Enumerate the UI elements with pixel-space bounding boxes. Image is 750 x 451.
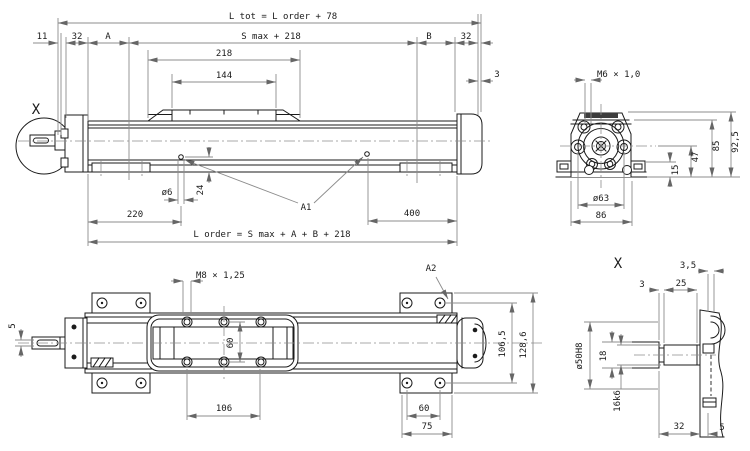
dim-32: 32: [674, 422, 685, 432]
dim-92-5: 92,5: [731, 131, 741, 153]
dim-32-right: 32: [461, 32, 472, 42]
dim-5-detail: 5: [719, 423, 724, 433]
dim-3-5: 3,5: [680, 261, 696, 271]
detail-view-labels: X 3,5 3 25 ø50H8 18 16k6 32 5: [575, 256, 725, 433]
dim-a: A: [105, 32, 111, 42]
technical-drawing-sheet: L tot = L order + 78 S max + 218 11 32 A…: [0, 0, 750, 451]
dim-b: B: [426, 32, 431, 42]
dim-106-5: 106,5: [498, 330, 508, 357]
dim-144: 144: [216, 71, 232, 81]
dim-3: 3: [639, 280, 644, 290]
side-view-geometry: [16, 110, 492, 176]
dim-220: 220: [127, 210, 143, 220]
dim-m6: M6 × 1,0: [597, 70, 640, 80]
plan-view-geometry: [18, 293, 545, 393]
dim-85: 85: [712, 141, 722, 152]
detail-view-x: X 3,5 3 25 ø50H8 18 16k6 32 5: [575, 256, 725, 438]
dim-18: 18: [599, 351, 609, 362]
dim-25: 25: [676, 279, 687, 289]
dim-15: 15: [671, 165, 681, 176]
dim-5: 5: [8, 323, 18, 328]
dim-s-max: S max + 218: [241, 32, 301, 42]
dim-106: 106: [216, 404, 232, 414]
detail-marker-x: X: [32, 102, 41, 118]
label-a1: A1: [301, 203, 312, 213]
dim-218: 218: [216, 49, 232, 59]
drawing-canvas: L tot = L order + 78 S max + 218 11 32 A…: [0, 0, 750, 451]
dim-60-feet: 60: [419, 404, 430, 414]
mounting-foot: [400, 163, 452, 172]
dim-75: 75: [422, 422, 433, 432]
dim-dia6: ø6: [162, 188, 173, 198]
dim-400: 400: [404, 209, 420, 219]
dim-dia50h8: ø50H8: [575, 342, 585, 369]
dim-dia63: ø63: [593, 194, 609, 204]
dim-3: 3: [494, 70, 499, 80]
detail-marker-x: X: [614, 256, 623, 272]
end-view: M6 × 1,0 15 47 85 92,5 ø63 86: [556, 70, 741, 226]
clamp-lug: [711, 316, 725, 344]
dim-24: 24: [196, 185, 206, 196]
label-a2: A2: [426, 264, 437, 274]
dim-16k6: 16k6: [613, 390, 623, 412]
dim-128-6: 128,6: [519, 331, 529, 358]
dim-86: 86: [596, 211, 607, 221]
dim-60-carriage: 60: [226, 338, 236, 349]
dim-l-order: L order = S max + A + B + 218: [193, 230, 350, 240]
a1-hole: [179, 155, 184, 160]
side-view: L tot = L order + 78 S max + 218 11 32 A…: [16, 12, 500, 246]
dim-l-tot: L tot = L order + 78: [229, 12, 337, 22]
detail-view-geometry: [632, 310, 725, 437]
end-view-geometry: [556, 104, 656, 188]
dim-32-left: 32: [72, 32, 83, 42]
a1-hole: [365, 152, 370, 157]
dim-m8: M8 × 1,25: [196, 271, 245, 281]
plan-view: M8 × 1,25 5 60 A2 106,5 128,6 106 60 75: [8, 264, 545, 438]
dim-47: 47: [691, 152, 701, 163]
dim-11: 11: [37, 32, 48, 42]
